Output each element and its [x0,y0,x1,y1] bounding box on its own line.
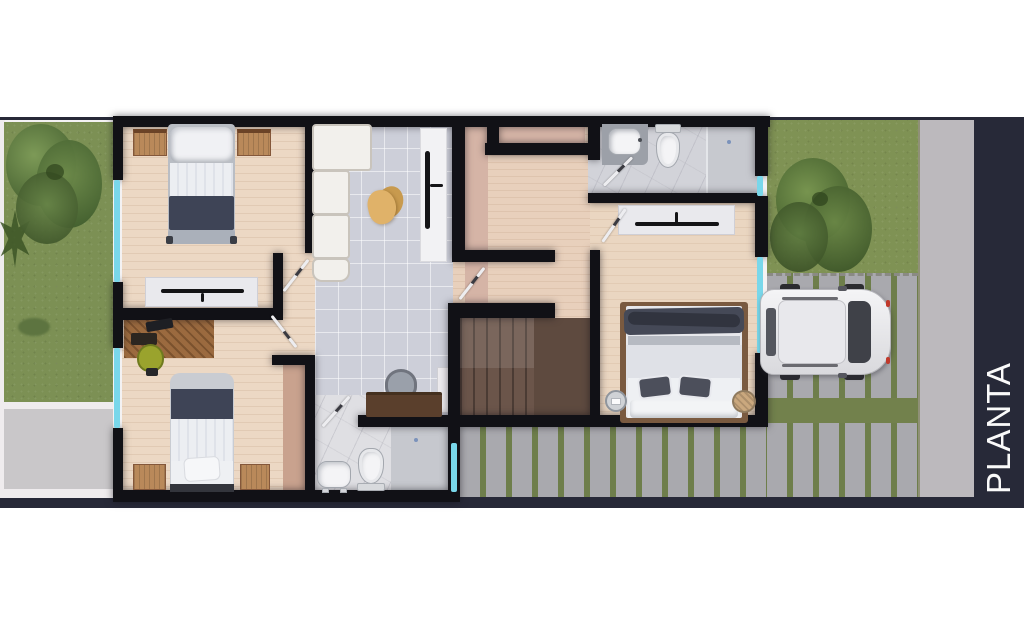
bathroom2-toilet [357,448,385,493]
tv-icon [635,222,719,226]
bathroom-main-vanity [602,124,648,165]
car-taillight [886,300,890,307]
bedroom2-desk-chair [137,344,164,372]
wall-hall-stub [487,116,499,155]
bedroom2-desk [131,333,157,345]
parked-car [758,284,894,380]
bedroom2-nightstand-left [133,464,166,490]
wall-closet-right [305,355,315,502]
wall-left-c [113,428,123,502]
wall-tv-icon [425,151,430,229]
car-mirror [838,373,847,378]
tv-stand-icon [201,293,204,302]
master-tv-console [618,205,735,235]
sofa-chaise [312,124,372,171]
window-bathroom2 [451,443,457,492]
wall-right-b [755,196,768,257]
bedroom1-closet-right [237,129,271,156]
car-roof-rail [782,364,838,367]
car-windshield [848,301,871,363]
bed-footboard [168,230,235,244]
wall-house-bottom-left [113,490,460,502]
bed-duvet [171,419,233,461]
bed-gray-band [628,336,740,345]
toilet-bowl-icon [358,448,384,484]
wall-stairs-left [448,318,460,427]
faucet-dot [638,138,642,142]
wall-bedroom1-right-lower [273,253,283,320]
bed-leg [166,236,173,244]
bedroom2-bed [170,373,234,492]
toilet-tank [357,483,385,491]
tv-bracket-icon [430,184,443,187]
wall-bathroom-main-bottom [588,193,758,203]
hall-desk [366,392,442,417]
bed-pillows [170,127,233,163]
sofa-cushion [312,170,350,215]
car-taillight [886,357,890,364]
wall-left-b [113,282,123,348]
wall-tv [452,116,465,262]
bedroom1-bed [168,124,235,244]
wall-bathroom-main-left [588,116,600,160]
sink-leg [340,488,347,493]
car-mirror [838,286,847,291]
bathroom-main-toilet [655,124,682,169]
plan-title: PLANTA ALTA [977,292,1021,494]
table-object [611,398,621,405]
window-bedroom2 [114,348,120,428]
wall-left-a [113,116,123,180]
bed-ruffle [630,400,738,418]
bedroom1-tv-console [145,277,258,307]
master-side-table-left [605,390,627,412]
sofa-cushion [312,214,350,259]
toilet-bowl-icon [656,132,680,168]
wall-master-left [590,250,600,427]
bed-blanket-navy [169,196,234,230]
sofa-arm [312,258,350,282]
bed-leg [230,236,237,244]
window-bathroom-main [757,176,763,196]
bedroom1-closet-left [133,129,167,156]
master-side-table-right [732,390,756,413]
bathroom-main-drain [727,140,731,144]
chair-base [146,368,158,376]
floor-plan-rendering: PLANTA ALTA [0,0,1024,624]
wall-stairs-top [448,303,555,318]
sink-leg [322,488,329,493]
wall-bedroom-divider [113,308,283,320]
lounge-tv-panel [420,128,447,262]
bedroom2-nightstand-right [240,464,270,490]
bed-blanket-navy [171,389,233,419]
bed-footboard [170,484,234,492]
wall-niche [485,143,590,155]
wall-hall-bar [455,250,555,262]
car-roof-rail [782,297,838,300]
master-bed [620,302,748,423]
window-bedroom1 [114,180,120,282]
bed-pillow [183,456,221,482]
car-roof [778,300,846,364]
bed-pillow-dark [637,374,673,400]
sink-icon [608,128,641,155]
wall-right-a [755,116,768,176]
car-rear-window [766,308,776,356]
bed-pillow-dark [677,374,713,399]
bathroom2-sink [317,461,351,488]
